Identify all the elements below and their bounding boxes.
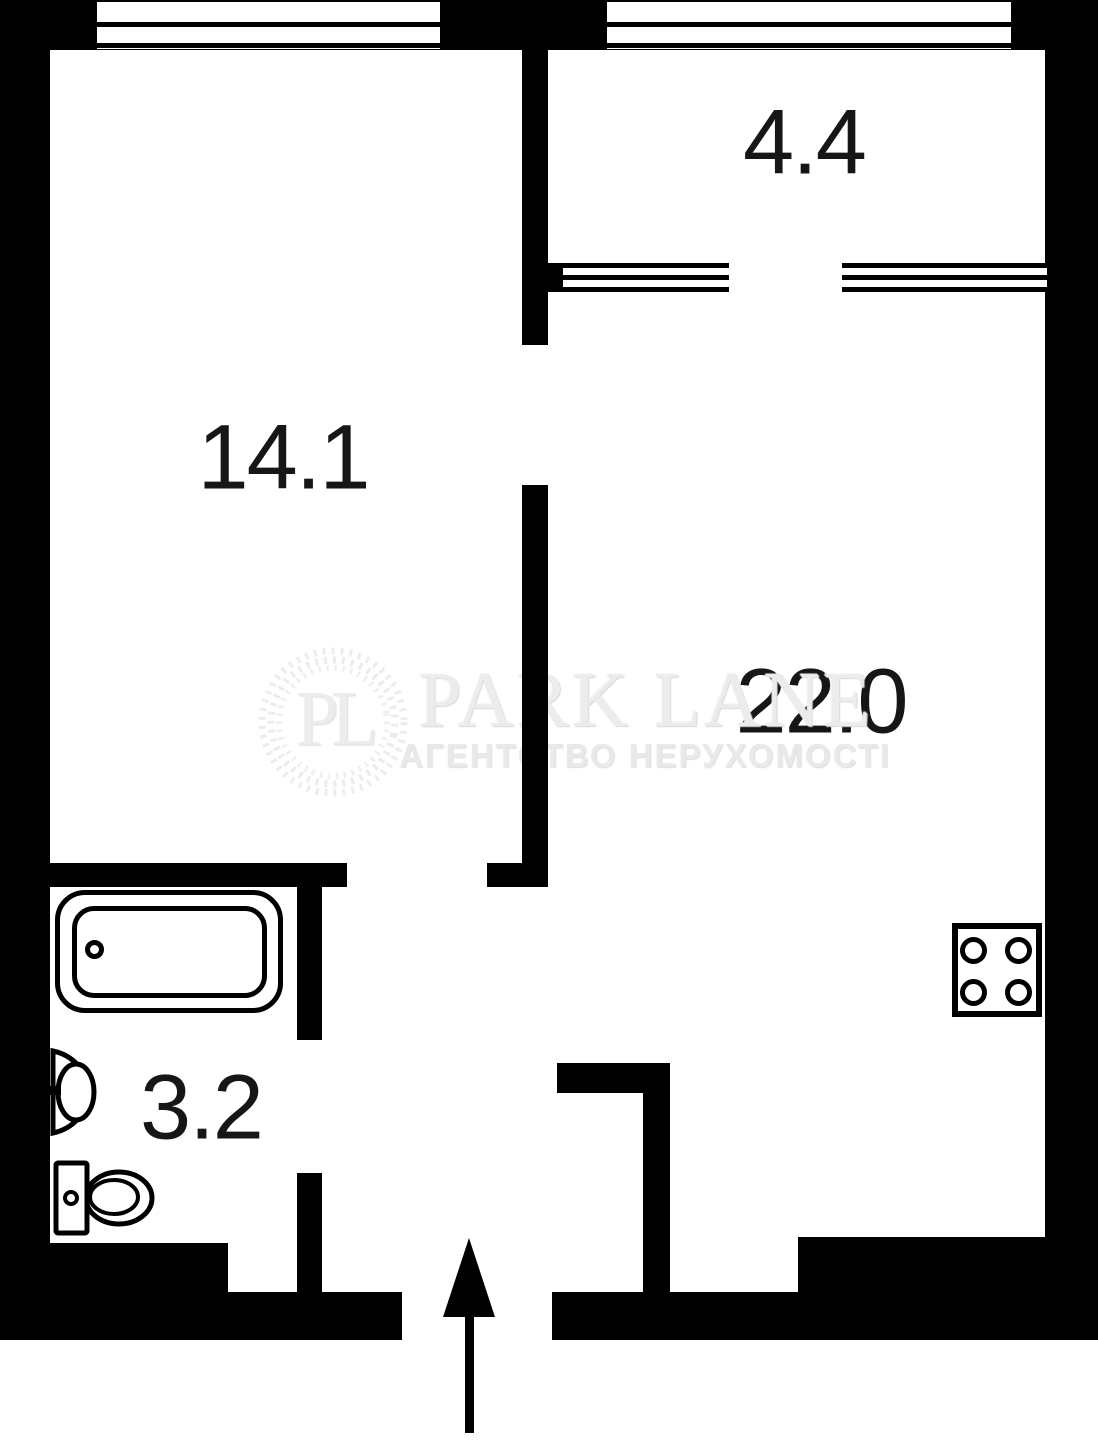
window-pane-line [97, 22, 440, 27]
entrance-arrow-head [443, 1238, 495, 1317]
wall-window-junction [548, 263, 563, 292]
wall-right [1045, 0, 1098, 1340]
toilet-icon [50, 1155, 160, 1245]
wall-bathroom-top [50, 863, 347, 887]
wall-bottom-right [552, 1292, 1098, 1340]
room-area-label: 14.1 [197, 406, 368, 511]
stove-burner [960, 937, 987, 964]
stove-burner [1005, 937, 1032, 964]
balcony-area-label: 4.4 [743, 91, 865, 196]
floor-plan-canvas: 14.1 4.4 22.0 3.2 PL PARK LANE АГЕНТСТВО… [0, 0, 1098, 1440]
window-pane-line [97, 43, 440, 48]
wall-bathroom-right-upper [297, 887, 322, 1040]
wall-middle-foot [487, 863, 548, 887]
sink-icon [45, 1043, 103, 1138]
bathroom-area-label: 3.2 [140, 1056, 262, 1161]
wall-bathroom-right-lower [297, 1173, 322, 1292]
wall-entry-top [557, 1063, 670, 1093]
wall-middle-upper [522, 50, 548, 345]
window-balcony-top [607, 2, 1011, 49]
window-pane-line [842, 263, 1047, 268]
watermark-monogram: PL [295, 673, 370, 763]
watermark-tagline-text: АГЕНТСТВО НЕРУХОМОСТІ [399, 737, 891, 775]
window-pane-line [607, 43, 1011, 48]
window-pane-line [842, 275, 1047, 280]
window-pane-line [842, 287, 1047, 292]
window-balcony-inner-left [563, 263, 729, 292]
window-room-top [97, 2, 440, 49]
wall-bathroom-step [50, 1243, 228, 1292]
watermark-brand-text: PARK LANE [418, 655, 873, 745]
window-pane-line [607, 22, 1011, 27]
wall-kitchen-step [798, 1237, 1047, 1292]
window-balcony-inner-right [842, 263, 1047, 292]
wall-entry-vertical [643, 1093, 670, 1292]
stove-burner [1005, 979, 1032, 1006]
window-pane-line [563, 275, 729, 280]
bathtub-drain [85, 940, 104, 959]
wall-bottom-left [0, 1292, 402, 1340]
window-pane-line [563, 287, 729, 292]
wall-middle-lower [522, 485, 548, 887]
stove-burner [960, 979, 987, 1006]
window-pane-line [563, 263, 729, 268]
wall-left [0, 0, 50, 1340]
